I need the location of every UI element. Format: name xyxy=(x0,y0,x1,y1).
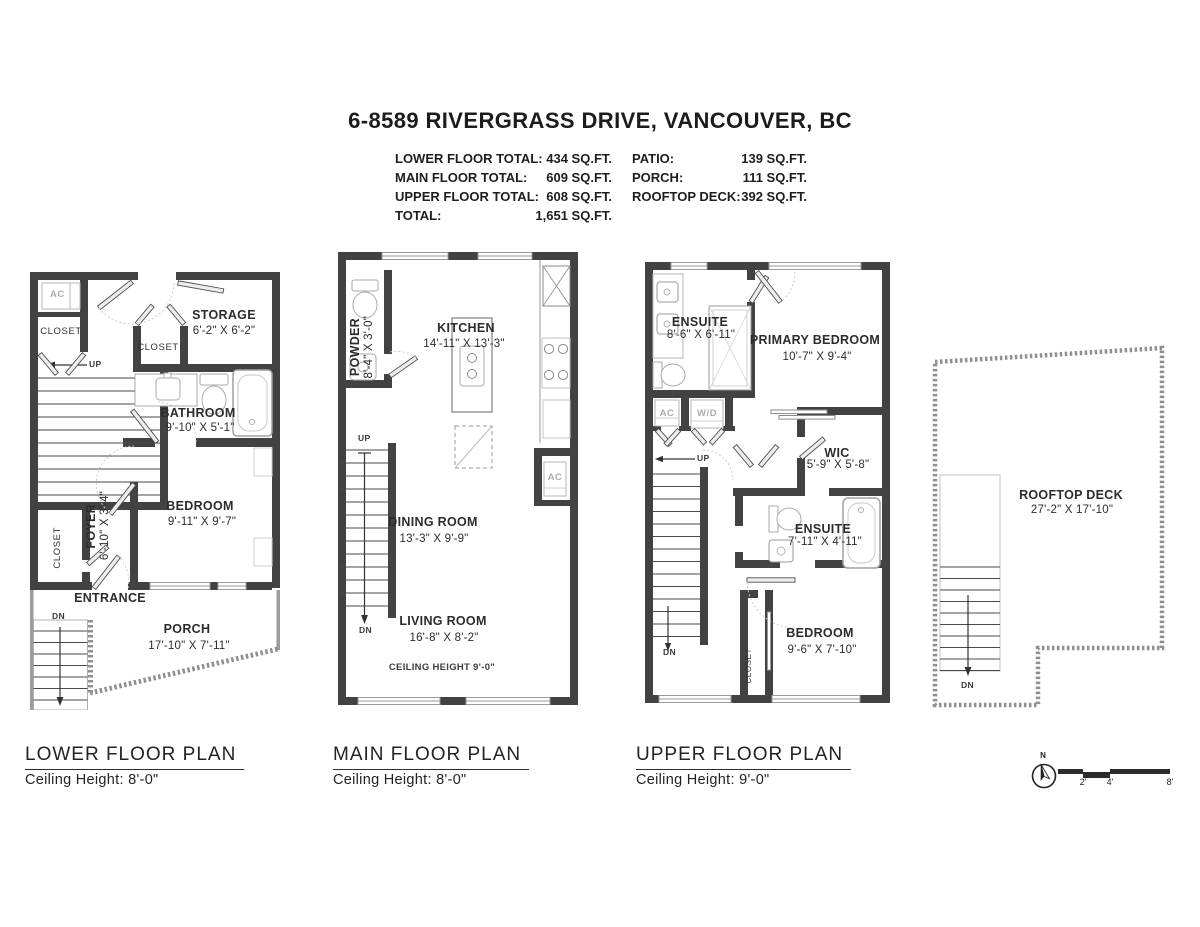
room-name-ensuite2: ENSUITE xyxy=(795,522,851,536)
summary-value: 434 SQ.FT. xyxy=(520,151,612,166)
room-name-storage: STORAGE xyxy=(192,308,256,322)
closet-label-vertical: CLOSET xyxy=(52,516,63,580)
ac-label: AC xyxy=(50,289,65,300)
dn-label: DN xyxy=(359,625,372,635)
upper-floor-plan-title: UPPER FLOOR PLAN xyxy=(636,744,851,770)
room-name-kitchen: KITCHEN xyxy=(437,321,495,335)
closet-label: CLOSET xyxy=(137,342,179,353)
room-name-foyer: FOYER xyxy=(84,504,98,549)
summary-label: MAIN FLOOR TOTAL: xyxy=(395,170,527,185)
dn-label: DN xyxy=(52,611,65,621)
room-name-ensuite1: ENSUITE xyxy=(672,315,728,329)
room-dims-powder: 8'-4" X 3'-0" xyxy=(363,316,375,378)
summary-label: UPPER FLOOR TOTAL: xyxy=(395,189,539,204)
page-title: 6-8589 RIVERGRASS DRIVE, VANCOUVER, BC xyxy=(348,108,852,134)
lower-floor-plan: AC CLOSET CLOSET STORAGE 6'-2" X 6'-2" U… xyxy=(30,270,280,710)
upper-floor-plan-footer: UPPER FLOOR PLAN Ceiling Height: 9'-0" xyxy=(636,744,851,788)
room-name-porch: PORCH xyxy=(164,622,211,636)
room-name-wic: WIC xyxy=(824,446,849,460)
dn-label: DN xyxy=(961,680,974,690)
room-dims-ensuite2: 7'-11" X 4'-11" xyxy=(788,536,862,548)
compass-north-label: N xyxy=(1040,751,1046,760)
scale-tick-label: 2' xyxy=(1080,777,1087,787)
room-dims-bedroom: 9'-11" X 9'-7" xyxy=(168,516,236,528)
room-dims-primary-bedroom: 10'-7" X 9'-4" xyxy=(782,351,851,363)
summary-label: PORCH: xyxy=(632,170,683,185)
ac-label: AC xyxy=(548,472,563,483)
room-dims-dining: 13'-3" X 9'-9" xyxy=(399,533,468,545)
room-name-rooftop-deck: ROOFTOP DECK xyxy=(1019,488,1123,502)
compass-icon xyxy=(1028,760,1060,792)
room-dims-porch: 17'-10" X 7'-11" xyxy=(148,640,229,652)
main-floor-plan-title: MAIN FLOOR PLAN xyxy=(333,744,529,770)
page: { "title": "6-8589 RIVERGRASS DRIVE, VAN… xyxy=(0,0,1200,927)
main-floor-plan: POWDER 8'-4" X 3'-0" KITCHEN 14'-11" X 1… xyxy=(338,250,578,705)
room-dims-ensuite1: 8'-6" X 6'-11" xyxy=(667,329,735,341)
room-label-foyer: FOYER 6'-10" X 3'-4" xyxy=(84,470,111,582)
upper-floor-plan-ceiling: Ceiling Height: 9'-0" xyxy=(636,772,851,788)
summary-value-total: 1,651 SQ.FT. xyxy=(510,208,612,223)
summary-label: PATIO: xyxy=(632,151,674,166)
closet-label: CLOSET xyxy=(744,648,753,684)
scale-tick-label: 4' xyxy=(1107,777,1114,787)
closet-label-vertical: CLOSET xyxy=(744,642,753,690)
room-name-powder: POWDER xyxy=(348,318,362,376)
summary-value: 392 SQ.FT. xyxy=(725,189,807,204)
rooftop-deck-drawing xyxy=(930,340,1165,715)
room-name-dining: DINING ROOM xyxy=(388,515,477,529)
room-dims-wic: 5'-9" X 5'-8" xyxy=(807,459,869,471)
summary-value: 139 SQ.FT. xyxy=(725,151,807,166)
room-name-primary-bedroom: PRIMARY BEDROOM xyxy=(750,333,880,347)
room-dims-kitchen: 14'-11" X 13'-3" xyxy=(423,338,504,350)
room-dims-rooftop-deck: 27'-2" X 17'-10" xyxy=(1031,504,1113,516)
room-name-bathroom: BATHROOM xyxy=(160,406,235,420)
lower-floor-plan-ceiling: Ceiling Height: 8'-0" xyxy=(25,772,244,788)
main-floor-plan-ceiling: Ceiling Height: 8'-0" xyxy=(333,772,529,788)
closet-label: CLOSET xyxy=(40,326,82,337)
up-label: UP xyxy=(358,433,370,443)
room-dims-storage: 6'-2" X 6'-2" xyxy=(193,325,255,337)
entrance-label: ENTRANCE xyxy=(74,591,146,605)
summary-value: 608 SQ.FT. xyxy=(520,189,612,204)
lower-floor-plan-footer: LOWER FLOOR PLAN Ceiling Height: 8'-0" xyxy=(25,744,244,788)
room-label-powder: POWDER 8'-4" X 3'-0" xyxy=(348,290,375,405)
washer-dryer-label: W/D xyxy=(697,408,717,419)
summary-label-total: TOTAL: xyxy=(395,208,441,223)
closet-label: CLOSET xyxy=(52,527,63,569)
room-dims-foyer: 6'-10" X 3'-4" xyxy=(99,491,111,560)
up-label: UP xyxy=(697,453,709,463)
upper-floor-plan: ENSUITE 8'-6" X 6'-11" PRIMARY BEDROOM 1… xyxy=(645,260,890,705)
room-name-bedroom2: BEDROOM xyxy=(786,626,853,640)
dn-label: DN xyxy=(663,647,676,657)
scale-tick-label: 8' xyxy=(1167,777,1174,787)
rooftop-deck-plan: ROOFTOP DECK 27'-2" X 17'-10" DN xyxy=(930,340,1165,715)
summary-value: 111 SQ.FT. xyxy=(725,170,807,185)
up-label: UP xyxy=(89,359,101,369)
room-name-living: LIVING ROOM xyxy=(399,614,486,628)
scale-bar: 2' 4' 8' xyxy=(1058,765,1178,791)
main-floor-plan-footer: MAIN FLOOR PLAN Ceiling Height: 8'-0" xyxy=(333,744,529,788)
room-dims-bathroom: 9'-10" X 5'-1" xyxy=(165,422,234,434)
ac-label: AC xyxy=(660,408,675,419)
room-name-bedroom: BEDROOM xyxy=(166,499,233,513)
room-dims-bedroom2: 9'-6" X 7'-10" xyxy=(787,644,856,656)
lower-floor-plan-title: LOWER FLOOR PLAN xyxy=(25,744,244,770)
room-dims-living: 16'-8" X 8'-2" xyxy=(409,632,478,644)
summary-value: 609 SQ.FT. xyxy=(520,170,612,185)
ceiling-note: CEILING HEIGHT 9'-0" xyxy=(389,662,495,673)
